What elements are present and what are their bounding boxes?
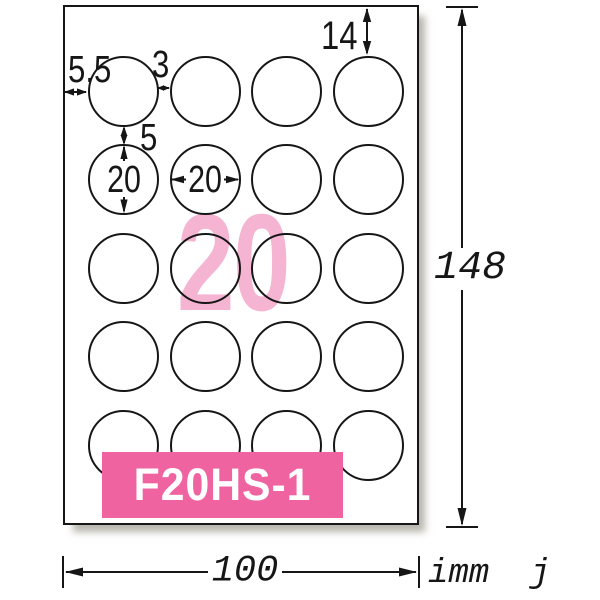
- label-circle: [88, 144, 159, 215]
- label-circle: [251, 321, 322, 392]
- product-code-box: F20HS-1: [102, 452, 343, 518]
- label-circle: [333, 321, 404, 392]
- label-circle: [170, 321, 241, 392]
- label-circle: [251, 233, 322, 304]
- label-circle: [251, 56, 322, 127]
- label-circle: [333, 410, 404, 481]
- label-circle: [170, 56, 241, 127]
- label-circle: [170, 144, 241, 215]
- label-circle: [88, 321, 159, 392]
- label-circle: [251, 144, 322, 215]
- label-sheet-diagram: 20: [0, 0, 600, 600]
- product-code-label: F20HS-1: [134, 459, 312, 511]
- label-circle: [333, 144, 404, 215]
- label-circle: [170, 233, 241, 304]
- label-circle: [88, 56, 159, 127]
- label-circle: [333, 233, 404, 304]
- label-circle: [88, 233, 159, 304]
- label-circle: [333, 56, 404, 127]
